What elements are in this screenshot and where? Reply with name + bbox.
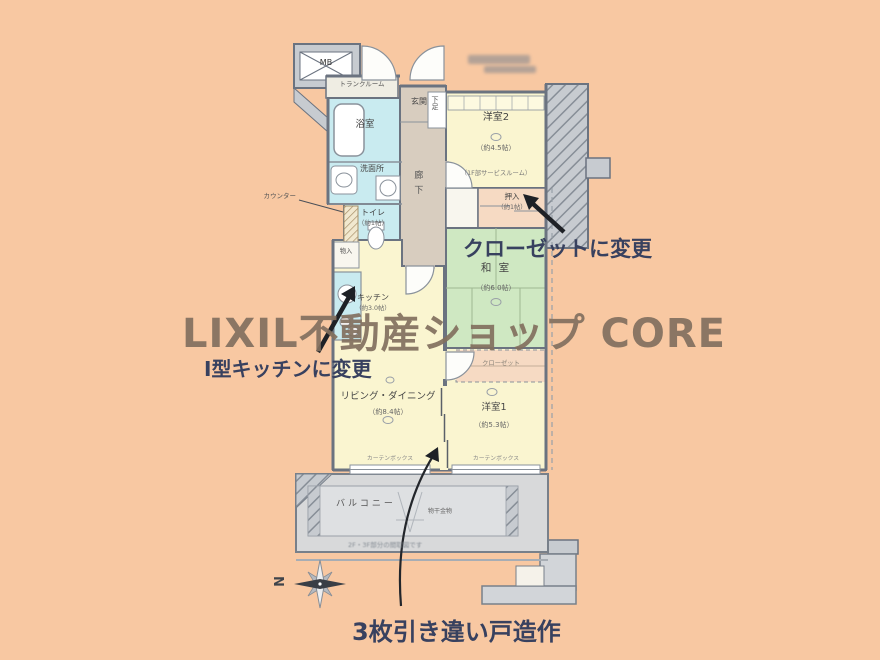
label-laundry-hardware: 物干金物 bbox=[418, 509, 462, 516]
annotation-kitchen-change: Ⅰ型キッチンに変更 bbox=[204, 353, 371, 382]
label-oshiire-size: （約1帖） bbox=[478, 204, 546, 211]
label-room2-size: （約4.5帖） bbox=[446, 144, 546, 152]
label-washroom: 洗面所 bbox=[342, 164, 402, 173]
label-washitsu: 和 室 bbox=[446, 262, 546, 274]
label-counter: カウンター bbox=[250, 193, 296, 200]
label-floor-note: 2F・3F部分の間取図です bbox=[348, 542, 422, 549]
compass-icon bbox=[294, 560, 346, 608]
toilet-bowl bbox=[368, 227, 384, 249]
label-shoe-box: 下足 bbox=[431, 96, 439, 110]
label-trunk-room: トランクルーム bbox=[326, 81, 398, 88]
label-curtain-box-living: カーテンボックス bbox=[348, 456, 432, 463]
label-corridor: 廊下 bbox=[412, 170, 422, 200]
label-living: リビング・ダイニング bbox=[334, 392, 442, 403]
label-bath: 浴室 bbox=[328, 120, 402, 131]
label-balcony: バルコニー bbox=[336, 499, 396, 509]
label-room2-note: （1F部サービスルーム） bbox=[444, 170, 548, 177]
label-room2: 洋室2 bbox=[446, 112, 546, 124]
label-room1-size: （約5.3帖） bbox=[446, 421, 542, 429]
storage-shape bbox=[446, 188, 478, 228]
tiny-print-smudge bbox=[468, 55, 530, 64]
label-curtain-box-room1: カーテンボックス bbox=[452, 456, 540, 463]
floorplan-screenshot: MB トランクルーム 浴室 洗面所 トイレ （約1帖） カウンター 玄関 下足 … bbox=[0, 0, 880, 660]
label-living-size: （約8.4帖） bbox=[334, 408, 442, 416]
label-washitsu-size: （約6.0帖） bbox=[446, 284, 546, 292]
tiny-print-smudge bbox=[484, 66, 536, 73]
label-room1: 洋室1 bbox=[446, 403, 542, 414]
annotation-sliding-door: 3枚引き違い戸造作 bbox=[352, 612, 561, 647]
annotation-closet-change: クローゼットに変更 bbox=[463, 233, 652, 263]
watermark-text: LIXIL不動産ショップ CORE bbox=[182, 301, 726, 359]
label-room1-closet: クローゼット bbox=[456, 360, 546, 367]
compass-north-label: N bbox=[274, 576, 289, 587]
label-mb: MB bbox=[300, 58, 352, 67]
label-toilet-size: （約1帖） bbox=[346, 220, 400, 227]
label-oshiire: 押入 bbox=[478, 193, 546, 202]
label-storage: 物入 bbox=[331, 248, 361, 255]
label-toilet: トイレ bbox=[346, 208, 400, 217]
